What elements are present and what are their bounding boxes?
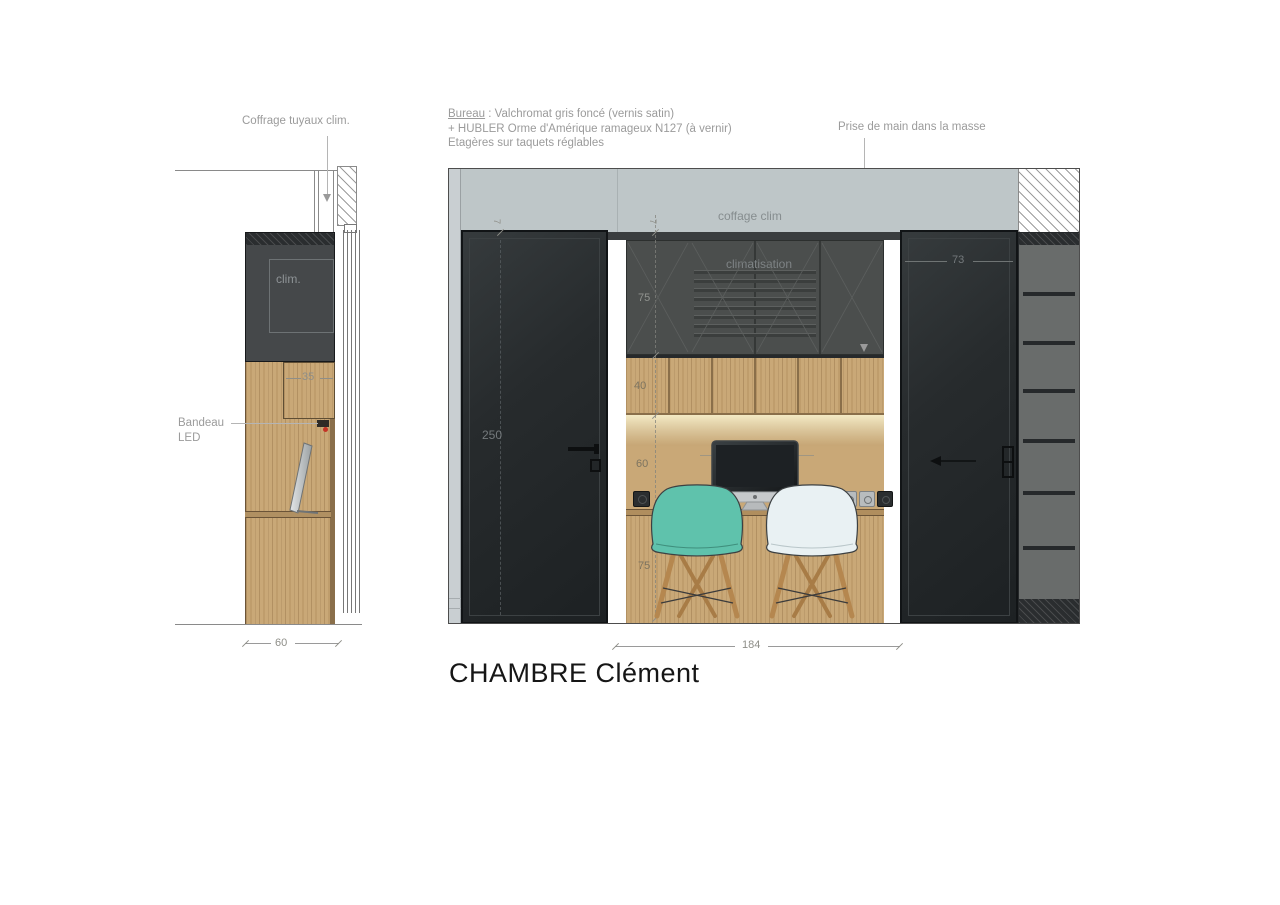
prise-arrowhead	[860, 344, 868, 352]
monitor-side-view	[290, 443, 318, 513]
chair-teal	[652, 485, 743, 616]
chair-white	[767, 485, 858, 616]
linework-layer	[0, 0, 1280, 905]
coffrage-arrowhead	[323, 194, 331, 202]
drawing-canvas: Coffrage tuyaux clim. clim. 35 Bandeau L…	[0, 0, 1280, 905]
door-slide-arrow	[930, 456, 976, 466]
door-swing-lines	[628, 243, 882, 352]
